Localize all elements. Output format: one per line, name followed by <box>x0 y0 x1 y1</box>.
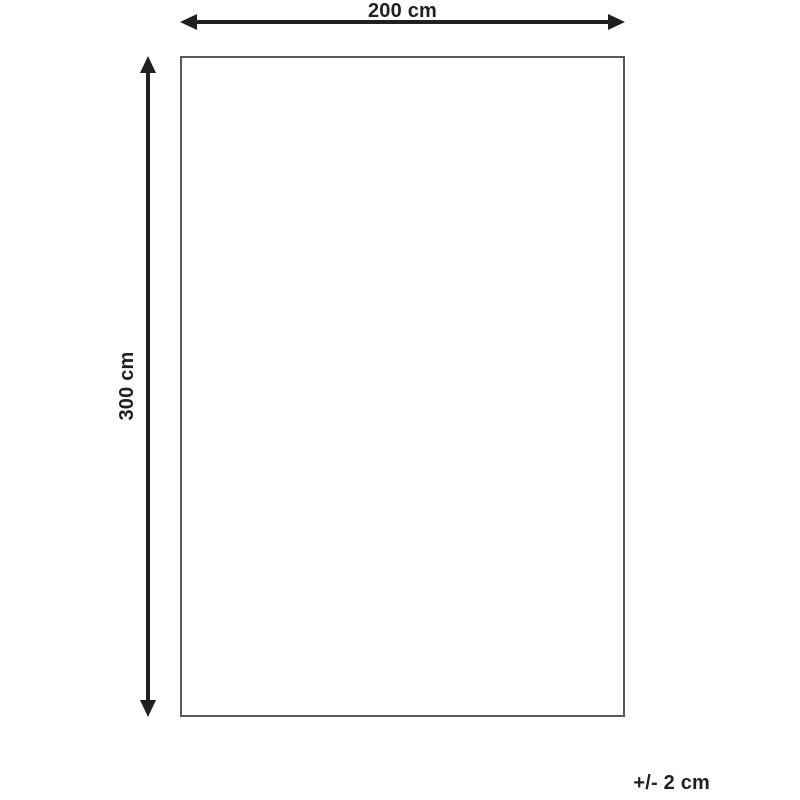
product-outline-rectangle <box>180 56 625 717</box>
width-dimension-label: 200 cm <box>180 0 625 23</box>
height-dimension-label: 300 cm <box>115 326 139 446</box>
tolerance-label: +/- 2 cm <box>590 772 710 795</box>
arrowhead-down-icon <box>140 700 156 717</box>
height-arrow-shaft <box>146 66 150 707</box>
height-dimension-arrow <box>140 56 156 717</box>
dimension-diagram: 200 cm 300 cm +/- 2 cm <box>0 0 800 800</box>
